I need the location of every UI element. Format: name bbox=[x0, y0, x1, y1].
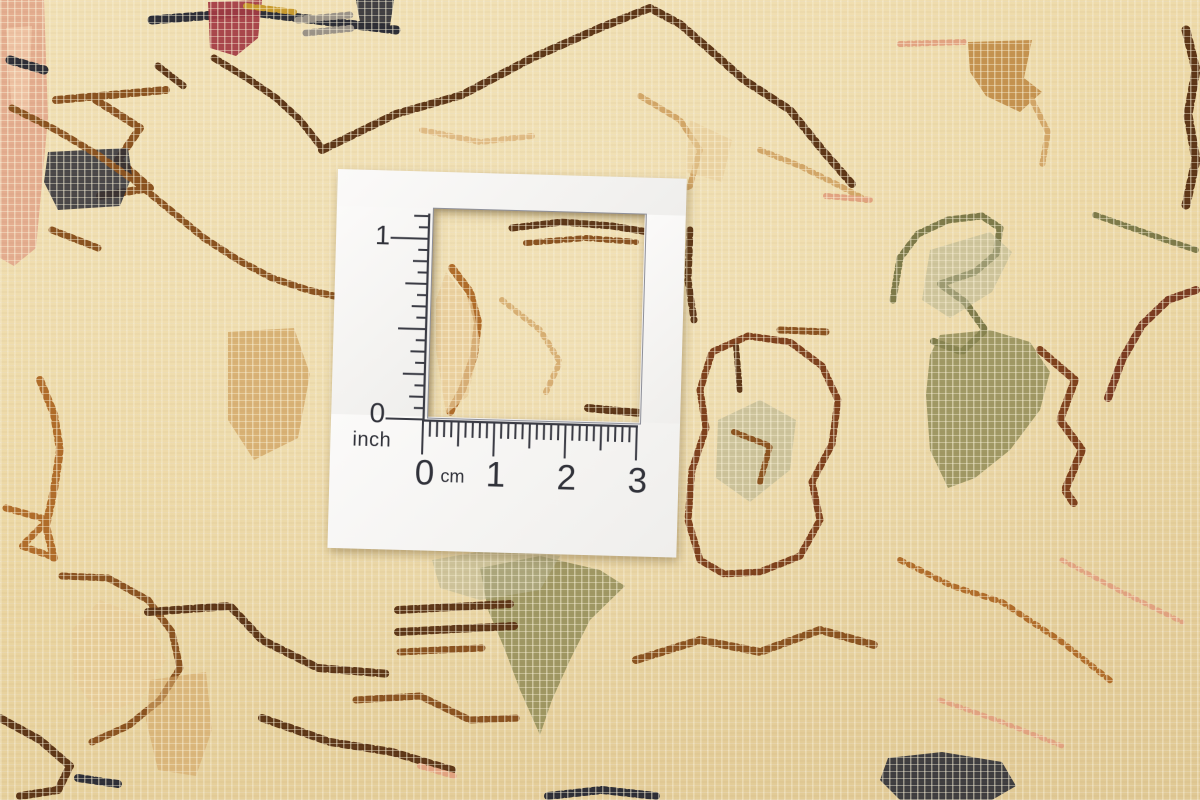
cm-unit-label: cm bbox=[440, 467, 464, 486]
card-window-cutout bbox=[427, 207, 647, 424]
cm-scale-label-0: 0 bbox=[409, 455, 440, 491]
inch-scale-label-0: 0 bbox=[355, 399, 386, 428]
measuring-card: 1 0 inch 0 cm 1 2 3 bbox=[327, 169, 686, 558]
cm-scale-label-1: 1 bbox=[480, 457, 511, 493]
cm-scale-label-2: 2 bbox=[551, 460, 582, 496]
card-face-right bbox=[639, 215, 686, 424]
inch-scale-label-1: 1 bbox=[362, 222, 391, 250]
cm-scale-label-3: 3 bbox=[622, 463, 653, 499]
inch-unit-label: inch bbox=[352, 430, 391, 451]
carpet-photo: 1 0 inch 0 cm 1 2 3 bbox=[0, 0, 1200, 800]
